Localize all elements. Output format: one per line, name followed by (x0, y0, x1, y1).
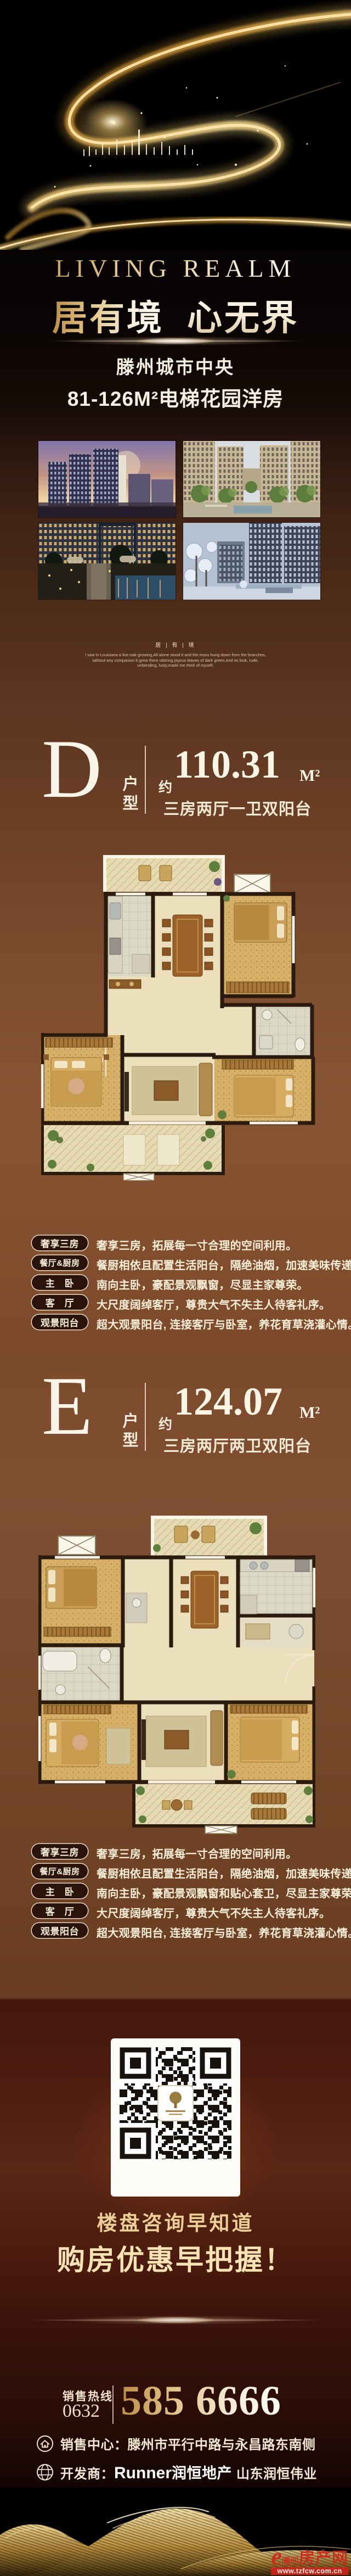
globe-icon (36, 2463, 54, 2481)
sales-center-text: 销售中心：滕州市平行中路与永昌路东南侧 (60, 2434, 316, 2453)
developer-text: 开发商：Runner润恒地产山东润恒伟业 (60, 2461, 317, 2483)
feature-label-pill: 客 厅 (32, 1295, 88, 1310)
promo-line-1: 楼盘咨询早知道 (0, 2206, 351, 2236)
product-line: 81-126M²电梯花园洋房 (0, 382, 351, 412)
feature-label-pill: 奢享三房 (32, 1236, 88, 1250)
feature-text: 餐厨相依且配置生活阳台，隔绝油烟，加速美味传递。 (97, 1256, 351, 1272)
flare-divider-footer (22, 2311, 329, 2329)
promo-line-2: 购房优惠早把握！ (0, 2237, 351, 2278)
gold-swirl-graphic (0, 0, 351, 250)
unit-type-label: 户型 (117, 1412, 140, 1451)
feature-label: 餐厅&厨房 (39, 1865, 80, 1877)
feature-row: 主 卧 南向主卧，豪配景观飘窗，尽显主家尊荣。 (0, 1275, 351, 1292)
poem-block: 居 | 有 | 境 I saw in Louisiana a live-oak … (0, 640, 351, 668)
feature-row: 奢享三房 奢享三房，拓展每一寸合理的空间利用。 (0, 1236, 351, 1252)
developer-label: 开发商： (60, 2467, 114, 2482)
unit-d-title: D 户型 约 110.31 M² 三房两厅一卫双阳台 (0, 742, 351, 817)
poem-line: without any companion it grew there utte… (0, 658, 351, 663)
developer-row: 开发商：Runner润恒地产山东润恒伟业 (36, 2461, 343, 2483)
gallery-photo-winter-scene (183, 523, 320, 600)
feature-label: 主 卧 (46, 1884, 75, 1898)
unit-area-unit: M² (299, 1404, 320, 1422)
unit-letter: E (42, 1364, 93, 1448)
watermark-logo: e 滕州 房产网 (271, 2547, 348, 2567)
feature-row: 餐厅&厨房 餐厨相依且配置生活阳台，隔绝油烟，加速美味传递。 (0, 1864, 351, 1880)
feature-label: 餐厅&厨房 (39, 1257, 80, 1269)
feature-label: 客 厅 (46, 1295, 75, 1309)
feature-text: 超大观景阳台, 连接客厅与卧室，养花育草浇灌心情。 (97, 1316, 351, 1332)
real-estate-poster: LIVING REALM 居有境 心无界 滕州城市中央 81-126M²电梯花园… (0, 0, 351, 2576)
hotline-area-code: 0632 (63, 2401, 100, 2422)
house-icon (36, 2435, 54, 2452)
watermark-url: www.tzfcw.com.cn (271, 2567, 348, 2575)
sales-center-row: 销售中心：滕州市平行中路与永昌路东南侧 (36, 2434, 343, 2453)
floor-plan-e (38, 1480, 315, 1834)
gallery-photo-pool-night (38, 523, 175, 600)
sales-center-label: 销售中心： (60, 2438, 128, 2452)
flare-divider-hero (44, 333, 307, 349)
feature-label-pill: 主 卧 (32, 1884, 88, 1898)
feature-label: 观景阳台 (41, 1315, 79, 1329)
site-watermark: e 滕州 房产网 www.tzfcw.com.cn (271, 2547, 348, 2575)
feature-text: 南向主卧，豪配景观飘窗和贴心套卫，尽显主家尊荣。 (97, 1885, 351, 1901)
unit-area: 110.31 (174, 744, 280, 785)
gallery-photo-courtyard-day (183, 441, 320, 517)
feature-text: 大尺度阔绰客厅，尊贵大气不失主人待客礼序。 (97, 1904, 330, 1920)
tagline-en: LIVING REALM (0, 254, 351, 283)
watermark-site-name: 房产网 (299, 2551, 348, 2567)
poem-header: 居 | 有 | 境 (0, 640, 351, 649)
unit-letter: D (42, 727, 102, 811)
developer-brand: Runner (114, 2464, 172, 2482)
feature-text: 大尺度阔绰客厅，尊贵大气不失主人待客礼序。 (97, 1296, 330, 1312)
feature-label: 奢享三房 (41, 1845, 79, 1858)
hotline-phone-number: 585 6666 (121, 2378, 281, 2424)
feature-row: 餐厅&厨房 餐厨相依且配置生活阳台，隔绝油烟，加速美味传递。 (0, 1255, 351, 1272)
feature-label-pill: 奢享三房 (32, 1844, 88, 1859)
feature-label-pill: 餐厅&厨房 (32, 1864, 88, 1879)
poem-line: unbending, lusty,made me think of myself… (0, 663, 351, 668)
feature-row: 观景阳台 超大观景阳台, 连接客厅与卧室，养花育草浇灌心情。 (0, 1315, 351, 1331)
unit-type-label: 户型 (117, 775, 140, 814)
feature-row: 观景阳台 超大观景阳台, 连接客厅与卧室，养花育草浇灌心情。 (0, 1923, 351, 1940)
approx-label: 约 (158, 1413, 172, 1433)
developer-company: 山东润恒伟业 (236, 2467, 317, 2482)
feature-label: 客 厅 (46, 1904, 75, 1918)
wechat-qr-code (111, 2038, 240, 2197)
sales-center-address: 滕州市平行中路与永昌路东南侧 (128, 2438, 316, 2452)
approx-label: 约 (158, 776, 172, 796)
title-divider (145, 1383, 146, 1451)
poem-line: I saw in Louisiana a live-oak growing,Al… (0, 652, 351, 658)
feature-text: 超大观景阳台, 连接客厅与卧室，养花育草浇灌心情。 (97, 1924, 351, 1940)
unit-e-title: E 户型 约 124.07 M² 三房两厅两卫双阳台 (0, 1379, 351, 1454)
feature-text: 奢享三房，拓展每一寸合理的空间利用。 (97, 1237, 297, 1253)
feature-label: 奢享三房 (41, 1236, 79, 1250)
unit-layout: 三房两厅一卫双阳台 (163, 796, 312, 819)
gallery-photo-towers-dusk (38, 441, 175, 517)
watermark-city: 滕州 (282, 2557, 298, 2566)
feature-row: 客 厅 大尺度阔绰客厅，尊贵大气不失主人待客礼序。 (0, 1903, 351, 1920)
feature-row: 主 卧 南向主卧，豪配景观飘窗和贴心套卫，尽显主家尊荣。 (0, 1884, 351, 1900)
feature-label: 观景阳台 (41, 1924, 79, 1937)
unit-area-unit: M² (299, 767, 320, 785)
feature-label-pill: 主 卧 (32, 1275, 88, 1290)
feature-row: 客 厅 大尺度阔绰客厅，尊贵大气不失主人待客礼序。 (0, 1295, 351, 1311)
feature-label-pill: 客 厅 (32, 1903, 88, 1918)
location-line: 滕州城市中央 (0, 353, 351, 379)
feature-row: 奢享三房 奢享三房，拓展每一寸合理的空间利用。 (0, 1844, 351, 1860)
unit-area: 124.07 (174, 1381, 282, 1422)
feature-label-pill: 观景阳台 (32, 1923, 88, 1938)
feature-label: 主 卧 (46, 1276, 75, 1289)
feature-text: 奢享三房，拓展每一寸合理的空间利用。 (97, 1845, 297, 1861)
feature-text: 餐厨相依且配置生活阳台，隔绝油烟，加速美味传递。 (97, 1865, 351, 1881)
developer-brand-cn: 润恒地产 (172, 2465, 232, 2482)
watermark-e-glyph: e (271, 2547, 282, 2567)
hotline-divider (112, 2385, 114, 2424)
floor-plan-d (41, 850, 315, 1181)
unit-layout: 三房两厅两卫双阳台 (163, 1433, 312, 1456)
feature-text: 南向主卧，豪配景观飘窗，尽显主家尊荣。 (97, 1276, 308, 1292)
feature-label-pill: 观景阳台 (32, 1315, 88, 1329)
feature-label-pill: 餐厅&厨房 (32, 1255, 88, 1270)
title-divider (145, 746, 146, 814)
